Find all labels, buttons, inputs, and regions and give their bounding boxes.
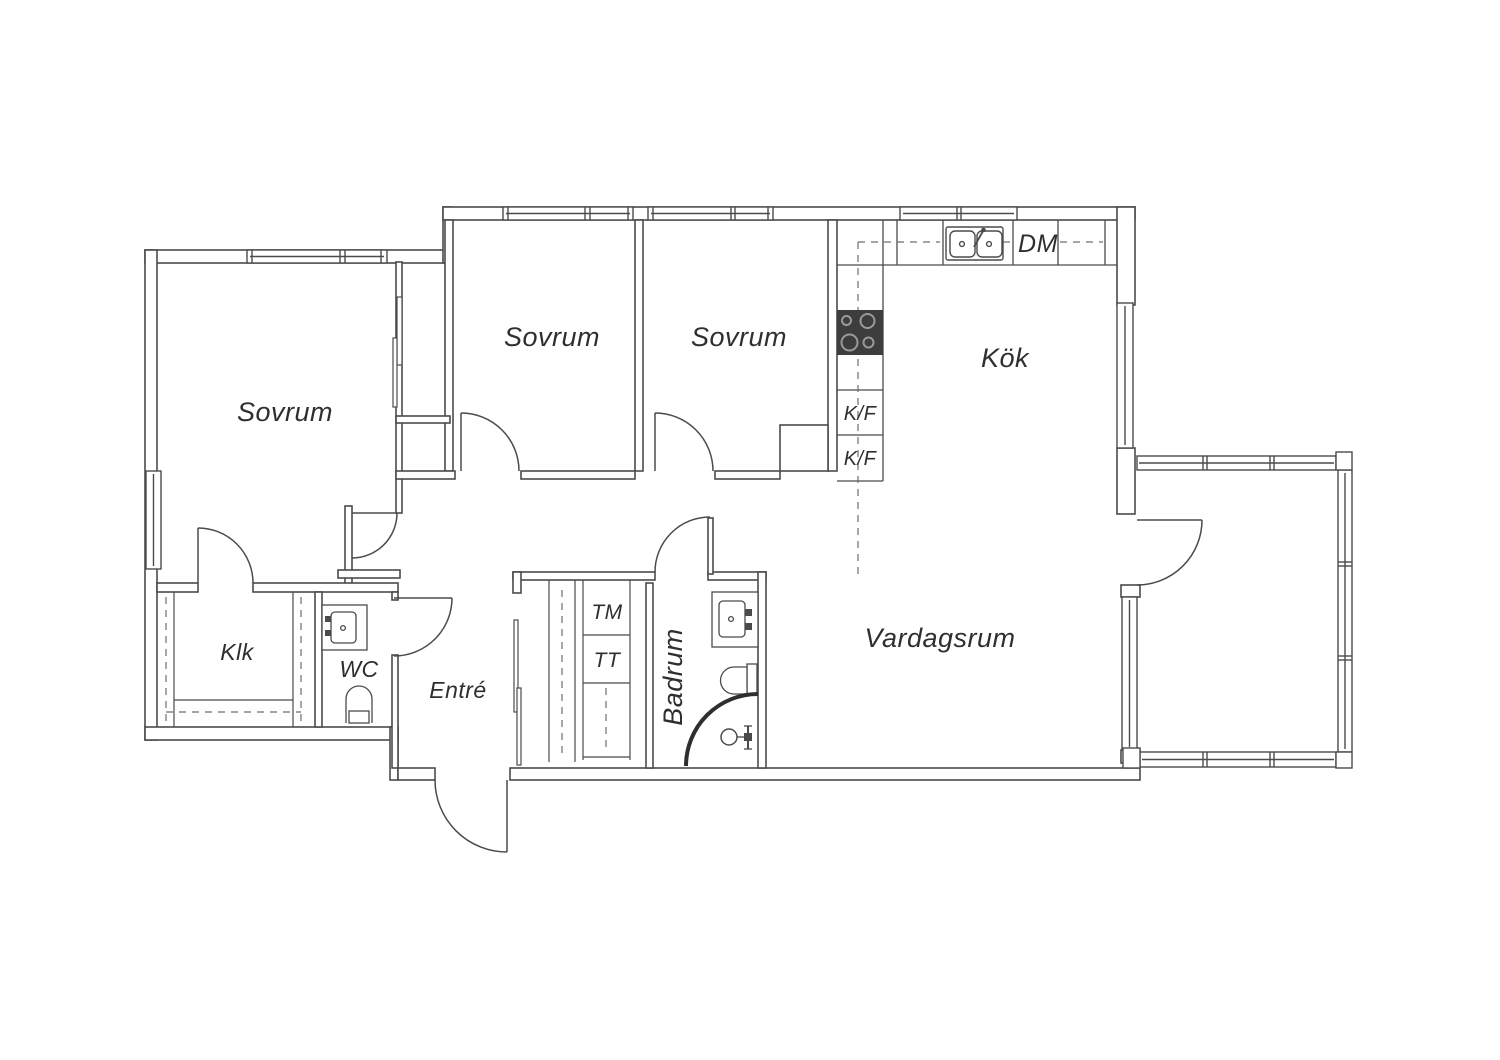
wall-kitchen-right-lower: [1117, 448, 1135, 514]
door-arc-front: [435, 780, 507, 852]
kitchen-sink-icon: [946, 227, 1003, 260]
badrum-door-leaf: [708, 518, 713, 574]
wall-klk-wc-divider: [315, 592, 322, 727]
shower-head-icon: [721, 729, 737, 745]
wall-wc-right-lower: [392, 655, 398, 768]
balcony-post-bottom-left: [1123, 748, 1140, 768]
label-sovrum-mid: Sovrum: [504, 322, 600, 352]
label-kf-upper: K/F: [844, 403, 878, 425]
wall-closet-bottom: [396, 416, 450, 423]
label-klk: Klk: [220, 639, 254, 665]
label-vardagsrum: Vardagsrum: [864, 623, 1015, 653]
badrum-toilet-bowl: [721, 667, 748, 694]
wall-sovrum2-left: [445, 220, 453, 471]
wc-toilet-base: [349, 711, 369, 723]
door-arc-wc: [394, 598, 452, 656]
wall-sovrum3-bottom: [715, 471, 780, 479]
label-sovrum-left: Sovrum: [237, 397, 333, 427]
label-tt: TT: [594, 649, 622, 672]
label-entre: Entré: [429, 677, 486, 703]
balcony-post-bottom-right: [1336, 752, 1352, 768]
door-arc-sovrum2: [461, 413, 519, 471]
label-kf-lower: K/F: [844, 448, 878, 470]
label-sovrum-right: Sovrum: [691, 322, 787, 352]
badrum-toilet-tank: [747, 664, 757, 694]
wall-entre-top: [513, 572, 655, 580]
wall-sovrum-divider: [635, 220, 643, 471]
wc-faucet: [325, 616, 331, 622]
wall-entre-top-cap: [513, 572, 521, 593]
wall-badrum-left: [646, 583, 653, 768]
wc-faucet: [325, 630, 331, 636]
walls: [145, 207, 1140, 780]
door-arc-balcony: [1137, 520, 1202, 585]
wall-niche-bottom: [338, 570, 400, 578]
wall-sovrum1-bottom-a: [157, 583, 198, 592]
wall-sovrum1-bottom-b: [253, 583, 398, 592]
label-badrum: Badrum: [658, 628, 688, 726]
floor-plan-svg: Sovrum Sovrum Sovrum Kök Vardagsrum Klk …: [0, 0, 1500, 1060]
wc-basin: [331, 612, 356, 643]
sovrum3-corner-box: [780, 425, 828, 471]
label-dm: DM: [1018, 230, 1058, 258]
sliding-door-entre-closet: [517, 688, 521, 765]
shower-mixer: [744, 733, 752, 741]
door-arc-sovrum1: [352, 513, 397, 558]
sliding-door-sovrum1-closet: [393, 338, 397, 407]
door-arc-badrum: [655, 517, 710, 572]
badrum-faucet: [745, 609, 752, 616]
wall-bottom-left: [145, 727, 398, 740]
door-arc-sovrum3: [655, 413, 713, 471]
balcony-post-top-right: [1336, 452, 1352, 470]
badrum-basin: [719, 601, 745, 637]
kitchen-fixtures: [837, 227, 1003, 355]
wall-window-cap-upper: [1121, 585, 1140, 597]
floor-plan-canvas: Sovrum Sovrum Sovrum Kök Vardagsrum Klk …: [0, 0, 1500, 1060]
sink-basin: [950, 231, 975, 257]
badrum-fixtures: [686, 592, 758, 766]
badrum-faucet: [745, 623, 752, 630]
wall-sovrum2-bottom-left: [396, 471, 455, 479]
wall-sovrum3-right: [828, 220, 837, 471]
wall-wc-right-upper: [392, 592, 398, 600]
label-wc: WC: [339, 656, 378, 682]
wall-bottom-main: [510, 768, 1140, 780]
wall-kitchen-right-upper: [1117, 207, 1135, 305]
wall-bottom-entry: [398, 768, 435, 780]
wall-badrum-right: [758, 572, 766, 768]
sink-faucet-tip: [982, 228, 985, 231]
label-tm: TM: [591, 601, 622, 624]
wall-sovrum2-bottom-right: [521, 471, 635, 479]
door-arc-klk: [198, 528, 253, 583]
sliding-door-sovrum1-closet: [397, 297, 402, 365]
label-kok: Kök: [981, 343, 1030, 373]
